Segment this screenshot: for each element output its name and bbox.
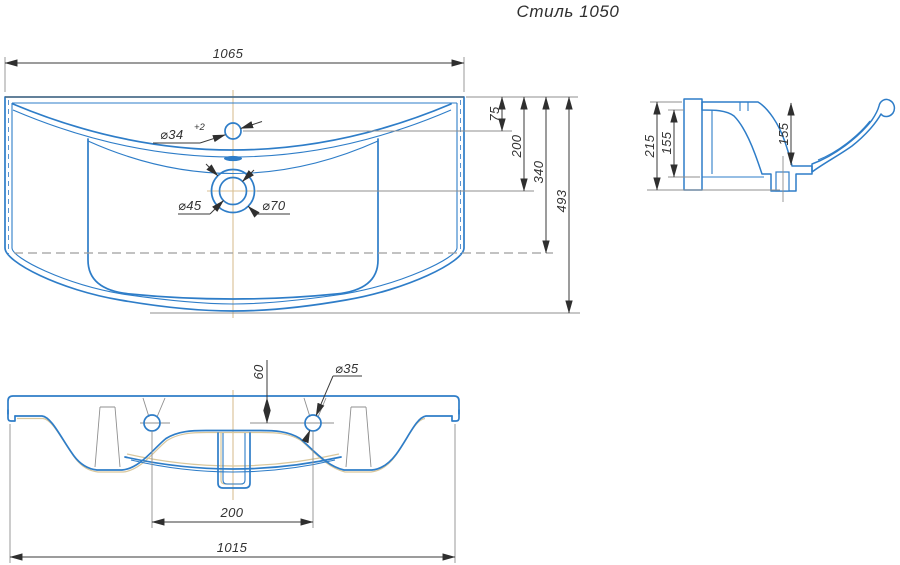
section-view: 215 155 155 — [642, 99, 894, 202]
dim-bottom-width: 1015 — [217, 540, 248, 555]
dim-mount-hole-dia: ⌀35 — [335, 361, 359, 376]
plan-depth-dims: 75 200 340 493 — [150, 97, 580, 313]
deck-front-curve-outer — [13, 104, 451, 150]
basin-inner-offset-outline — [12, 103, 457, 304]
dim-section-bowl-depth: 155 — [776, 122, 791, 145]
drawing-svg: Стиль 1050 ⌀34 +2 — [0, 0, 900, 565]
front-view: 60 ⌀35 200 1015 — [8, 360, 459, 563]
apron-hook-left — [8, 410, 15, 421]
mount-hole-dia-leader: ⌀35 — [305, 361, 362, 442]
section-front-wall — [812, 99, 894, 172]
dim-section-back-height: 155 — [659, 131, 674, 154]
dim-drain-inner-dia: ⌀45 — [178, 198, 202, 213]
section-front-inner-line — [818, 121, 870, 160]
dim-faucet-hole-tol: +2 — [194, 122, 206, 133]
dim-section-overall-height: 215 — [642, 134, 657, 158]
section-back-wall — [684, 99, 702, 190]
section-faucet-slot-fill — [740, 103, 748, 111]
dim-overall-width: 1065 — [213, 46, 244, 61]
dim-drain-offset: 200 — [509, 134, 524, 158]
dim-faucet-hole-dia: ⌀34 — [160, 127, 184, 142]
dim-mid-depth: 340 — [531, 160, 546, 183]
plan-view: ⌀34 +2 ⌀45 ⌀70 1065 — [5, 46, 580, 318]
dim-hole-spacing: 200 — [220, 505, 244, 520]
drawing-title: Стиль 1050 — [517, 2, 620, 21]
faucet-dia-leader: ⌀34 +2 — [153, 122, 262, 144]
overflow-slot — [224, 156, 242, 161]
dim-hole-drop-group: 60 — [251, 360, 267, 423]
dim-overall-width-group: 1065 — [5, 46, 464, 92]
dim-overall-depth: 493 — [554, 189, 569, 212]
drain-box-inner — [223, 433, 245, 484]
technical-drawing-canvas: Стиль 1050 ⌀34 +2 — [0, 0, 900, 565]
dim-drain-outer-dia: ⌀70 — [262, 198, 286, 213]
dim-hole-drop: 60 — [251, 364, 266, 380]
section-drain-socket — [776, 172, 789, 191]
section-bowl-back-and-floor — [702, 102, 812, 191]
front-shadow-lines — [17, 419, 425, 485]
dim-faucet-offset: 75 — [487, 106, 502, 122]
apron-hook-right — [452, 410, 459, 421]
